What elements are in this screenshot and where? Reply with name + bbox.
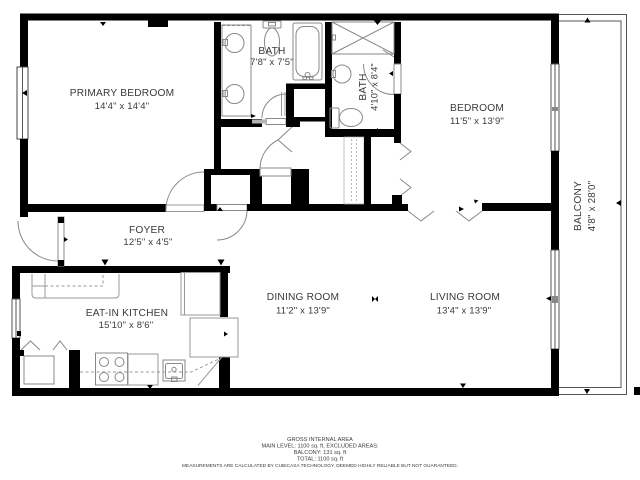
svg-text:DINING ROOM: DINING ROOM — [267, 292, 339, 303]
svg-text:TOTAL: 1100 sq. ft: TOTAL: 1100 sq. ft — [297, 457, 344, 463]
svg-text:14'4" x 14'4": 14'4" x 14'4" — [95, 101, 150, 112]
svg-text:BEDROOM: BEDROOM — [450, 103, 504, 114]
svg-text:4'10" x 8'4": 4'10" x 8'4" — [370, 63, 380, 111]
svg-text:13'4" x 13'9": 13'4" x 13'9" — [437, 306, 492, 317]
svg-text:BALCONY: BALCONY — [573, 181, 584, 231]
svg-text:BATH: BATH — [358, 73, 369, 100]
svg-text:EAT-IN KITCHEN: EAT-IN KITCHEN — [86, 308, 168, 319]
svg-text:MEASUREMENTS ARE CALCULATED BY: MEASUREMENTS ARE CALCULATED BY CUBICASA … — [182, 463, 458, 469]
svg-text:12'5" x 4'5": 12'5" x 4'5" — [123, 237, 172, 248]
svg-text:BATH: BATH — [258, 46, 285, 57]
svg-text:BALCONY: 131 sq. ft: BALCONY: 131 sq. ft — [294, 450, 347, 456]
svg-text:15'10" x 8'6": 15'10" x 8'6" — [99, 320, 154, 331]
svg-text:PRIMARY BEDROOM: PRIMARY BEDROOM — [70, 88, 175, 99]
svg-text:FOYER: FOYER — [129, 225, 165, 236]
svg-text:7'8" x 7'5": 7'8" x 7'5" — [250, 57, 294, 68]
svg-text:MAIN LEVEL: 1100 sq. ft, EXCLU: MAIN LEVEL: 1100 sq. ft, EXCLUDED AREAS: — [261, 444, 379, 450]
svg-text:4'8" x 28'0": 4'8" x 28'0" — [587, 180, 598, 231]
svg-text:11'2" x 13'9": 11'2" x 13'9" — [276, 306, 330, 317]
svg-text:GROSS INTERNAL AREA: GROSS INTERNAL AREA — [287, 437, 353, 443]
svg-text:LIVING ROOM: LIVING ROOM — [430, 292, 500, 303]
svg-text:11'5" x 13'9": 11'5" x 13'9" — [450, 116, 504, 127]
